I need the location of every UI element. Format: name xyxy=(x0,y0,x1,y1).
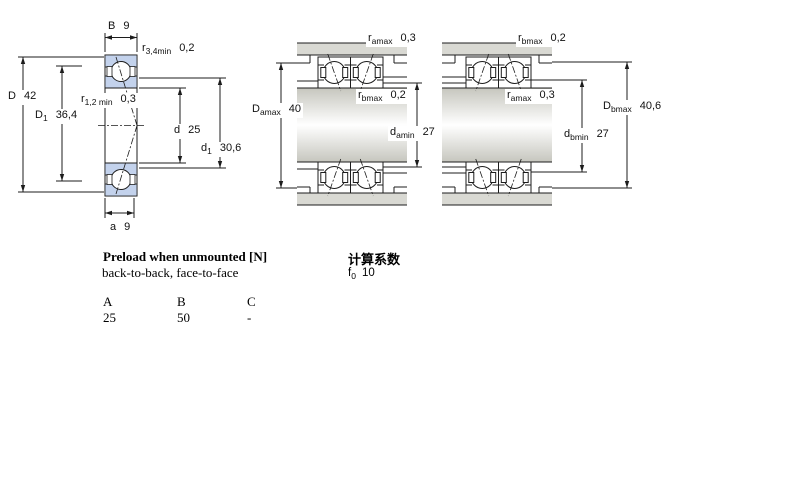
dim-label-Dbmax: Dbmax40,6 xyxy=(601,100,663,115)
dim-label-rbmax-mid: rbmax0,2 xyxy=(356,89,408,104)
figure-back-to-back-pair xyxy=(276,43,422,205)
preload-col-b: B xyxy=(177,294,186,310)
preload-val-c: - xyxy=(247,310,251,326)
dim-label-d: d25 xyxy=(172,124,202,139)
dim-label-d1: d130,6 xyxy=(199,142,243,157)
bearing-catalog-drawing: B9 r3,4min0,2 D42 D136,4 r1,2 min0,3 d25… xyxy=(0,0,800,500)
figure-face-to-face-pair xyxy=(442,43,632,205)
preload-val-b: 50 xyxy=(177,310,190,326)
preload-col-c: C xyxy=(247,294,256,310)
dim-label-B: B9 xyxy=(106,20,131,35)
dim-label-ramax-mid: ramax0,3 xyxy=(505,89,557,104)
calc-factor-f0: f010 xyxy=(348,267,375,281)
dim-label-Damax: Damax40 xyxy=(250,103,303,118)
calc-factors-heading: 计算系数 xyxy=(348,249,400,268)
preload-heading: Preload when unmounted [N] xyxy=(103,249,267,265)
dim-label-D: D42 xyxy=(6,90,38,105)
dim-label-a: a9 xyxy=(108,221,132,236)
dim-label-ramax-top: ramax0,3 xyxy=(366,32,418,47)
dim-label-rbmax-top: rbmax0,2 xyxy=(516,32,568,47)
dim-label-dbmin: dbmin27 xyxy=(562,128,611,143)
preload-subheading: back-to-back, face-to-face xyxy=(102,265,238,281)
preload-col-a: A xyxy=(103,294,112,310)
dim-label-r34min: r3,4min0,2 xyxy=(140,42,196,57)
preload-val-a: 25 xyxy=(103,310,116,326)
dim-label-r12min: r1,2 min0,3 xyxy=(79,93,138,108)
ball-bottom xyxy=(111,170,131,190)
dim-label-damin: damin27 xyxy=(388,126,437,141)
ball-top xyxy=(111,62,131,82)
dim-label-D1: D136,4 xyxy=(33,109,79,124)
